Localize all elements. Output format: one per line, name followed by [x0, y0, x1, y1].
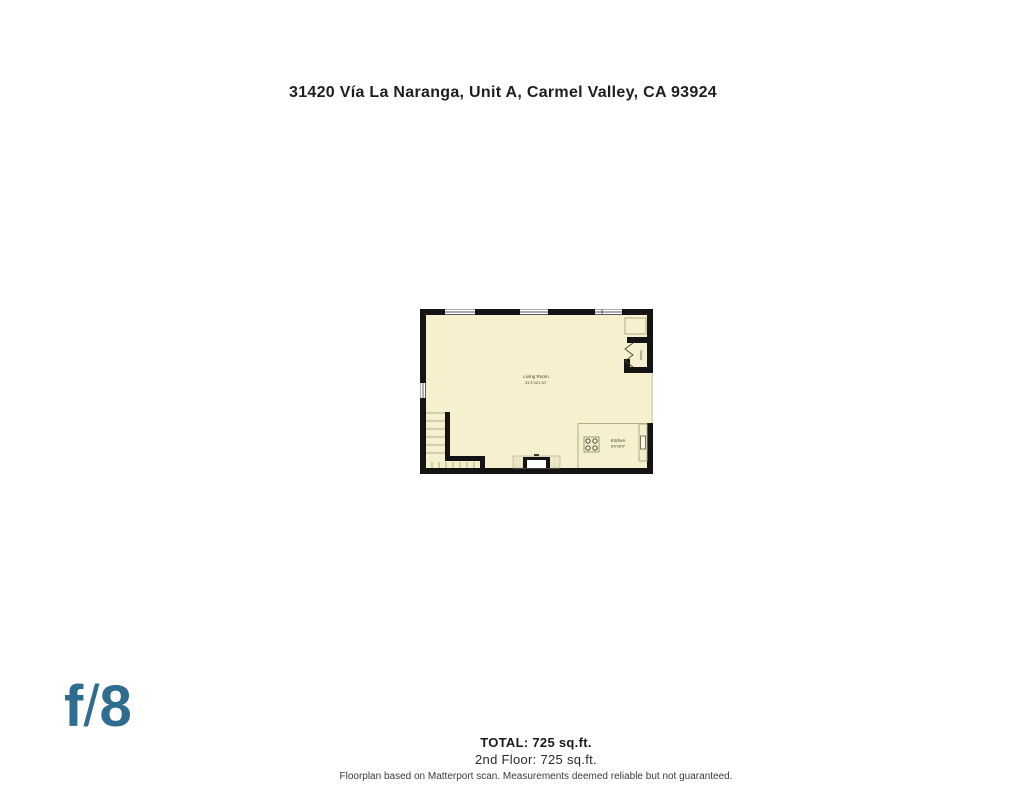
footer-total: TOTAL: 725 sq.ft.: [24, 735, 1024, 750]
fireplace-icon: [513, 454, 560, 468]
stair-wall-return: [480, 456, 485, 474]
window-icon: [520, 309, 548, 315]
living-room-label: Living Room: [523, 374, 549, 379]
sink-icon: [641, 436, 646, 449]
floorplan-page: 31420 Vía La Naranga, Unit A, Carmel Val…: [0, 0, 1024, 791]
logo-slash-icon: /: [82, 674, 99, 739]
stair-wall-vertical: [445, 412, 450, 461]
wall-right-lower: [647, 423, 653, 474]
window-icon: [445, 309, 475, 315]
closet-label: Closet: [639, 350, 643, 360]
kitchen-dimensions: 8'8"x8'9": [611, 445, 626, 449]
kitchen-label: Kitchen: [611, 438, 626, 443]
footer-floor-line: 2nd Floor: 725 sq.ft.: [24, 752, 1024, 767]
page-title: 31420 Vía La Naranga, Unit A, Carmel Val…: [0, 84, 1006, 102]
window-icon: [420, 383, 426, 398]
stair-wall-horizontal: [445, 456, 485, 461]
floorplan: Closet: [420, 309, 653, 474]
footer-disclaimer: Floorplan based on Matterport scan. Meas…: [24, 771, 1024, 782]
logo-f: f: [64, 674, 82, 739]
living-room-dimensions: 31'3"x21'10": [525, 380, 548, 385]
window-icon: [595, 309, 622, 315]
f8-logo: f/8: [64, 678, 131, 736]
footer: TOTAL: 725 sq.ft. 2nd Floor: 725 sq.ft. …: [24, 735, 1024, 782]
logo-eight: 8: [99, 674, 130, 739]
closet-wall-upper: [627, 337, 653, 343]
wall-bottom: [420, 468, 653, 474]
